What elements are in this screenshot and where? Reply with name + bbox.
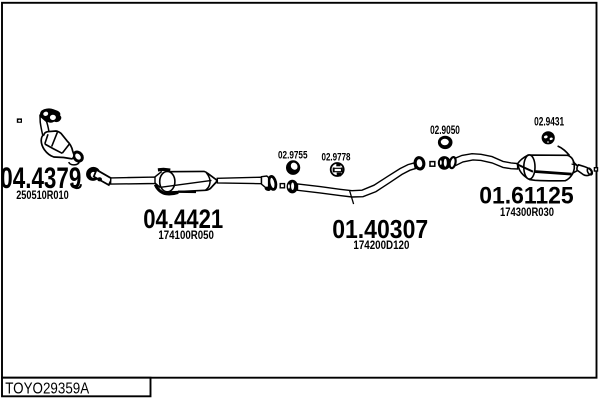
svg-text:250510R010: 250510R010	[16, 188, 69, 202]
svg-text:TOYO29359A: TOYO29359A	[5, 381, 89, 398]
svg-text:02.9431: 02.9431	[534, 115, 564, 129]
svg-text:174300R030: 174300R030	[500, 205, 554, 219]
svg-text:02.9050: 02.9050	[430, 124, 460, 137]
svg-text:174200D120: 174200D120	[353, 238, 409, 252]
svg-text:02.9755: 02.9755	[278, 149, 308, 161]
svg-text:174100R050: 174100R050	[158, 228, 214, 242]
svg-text:02.9778: 02.9778	[322, 151, 351, 163]
